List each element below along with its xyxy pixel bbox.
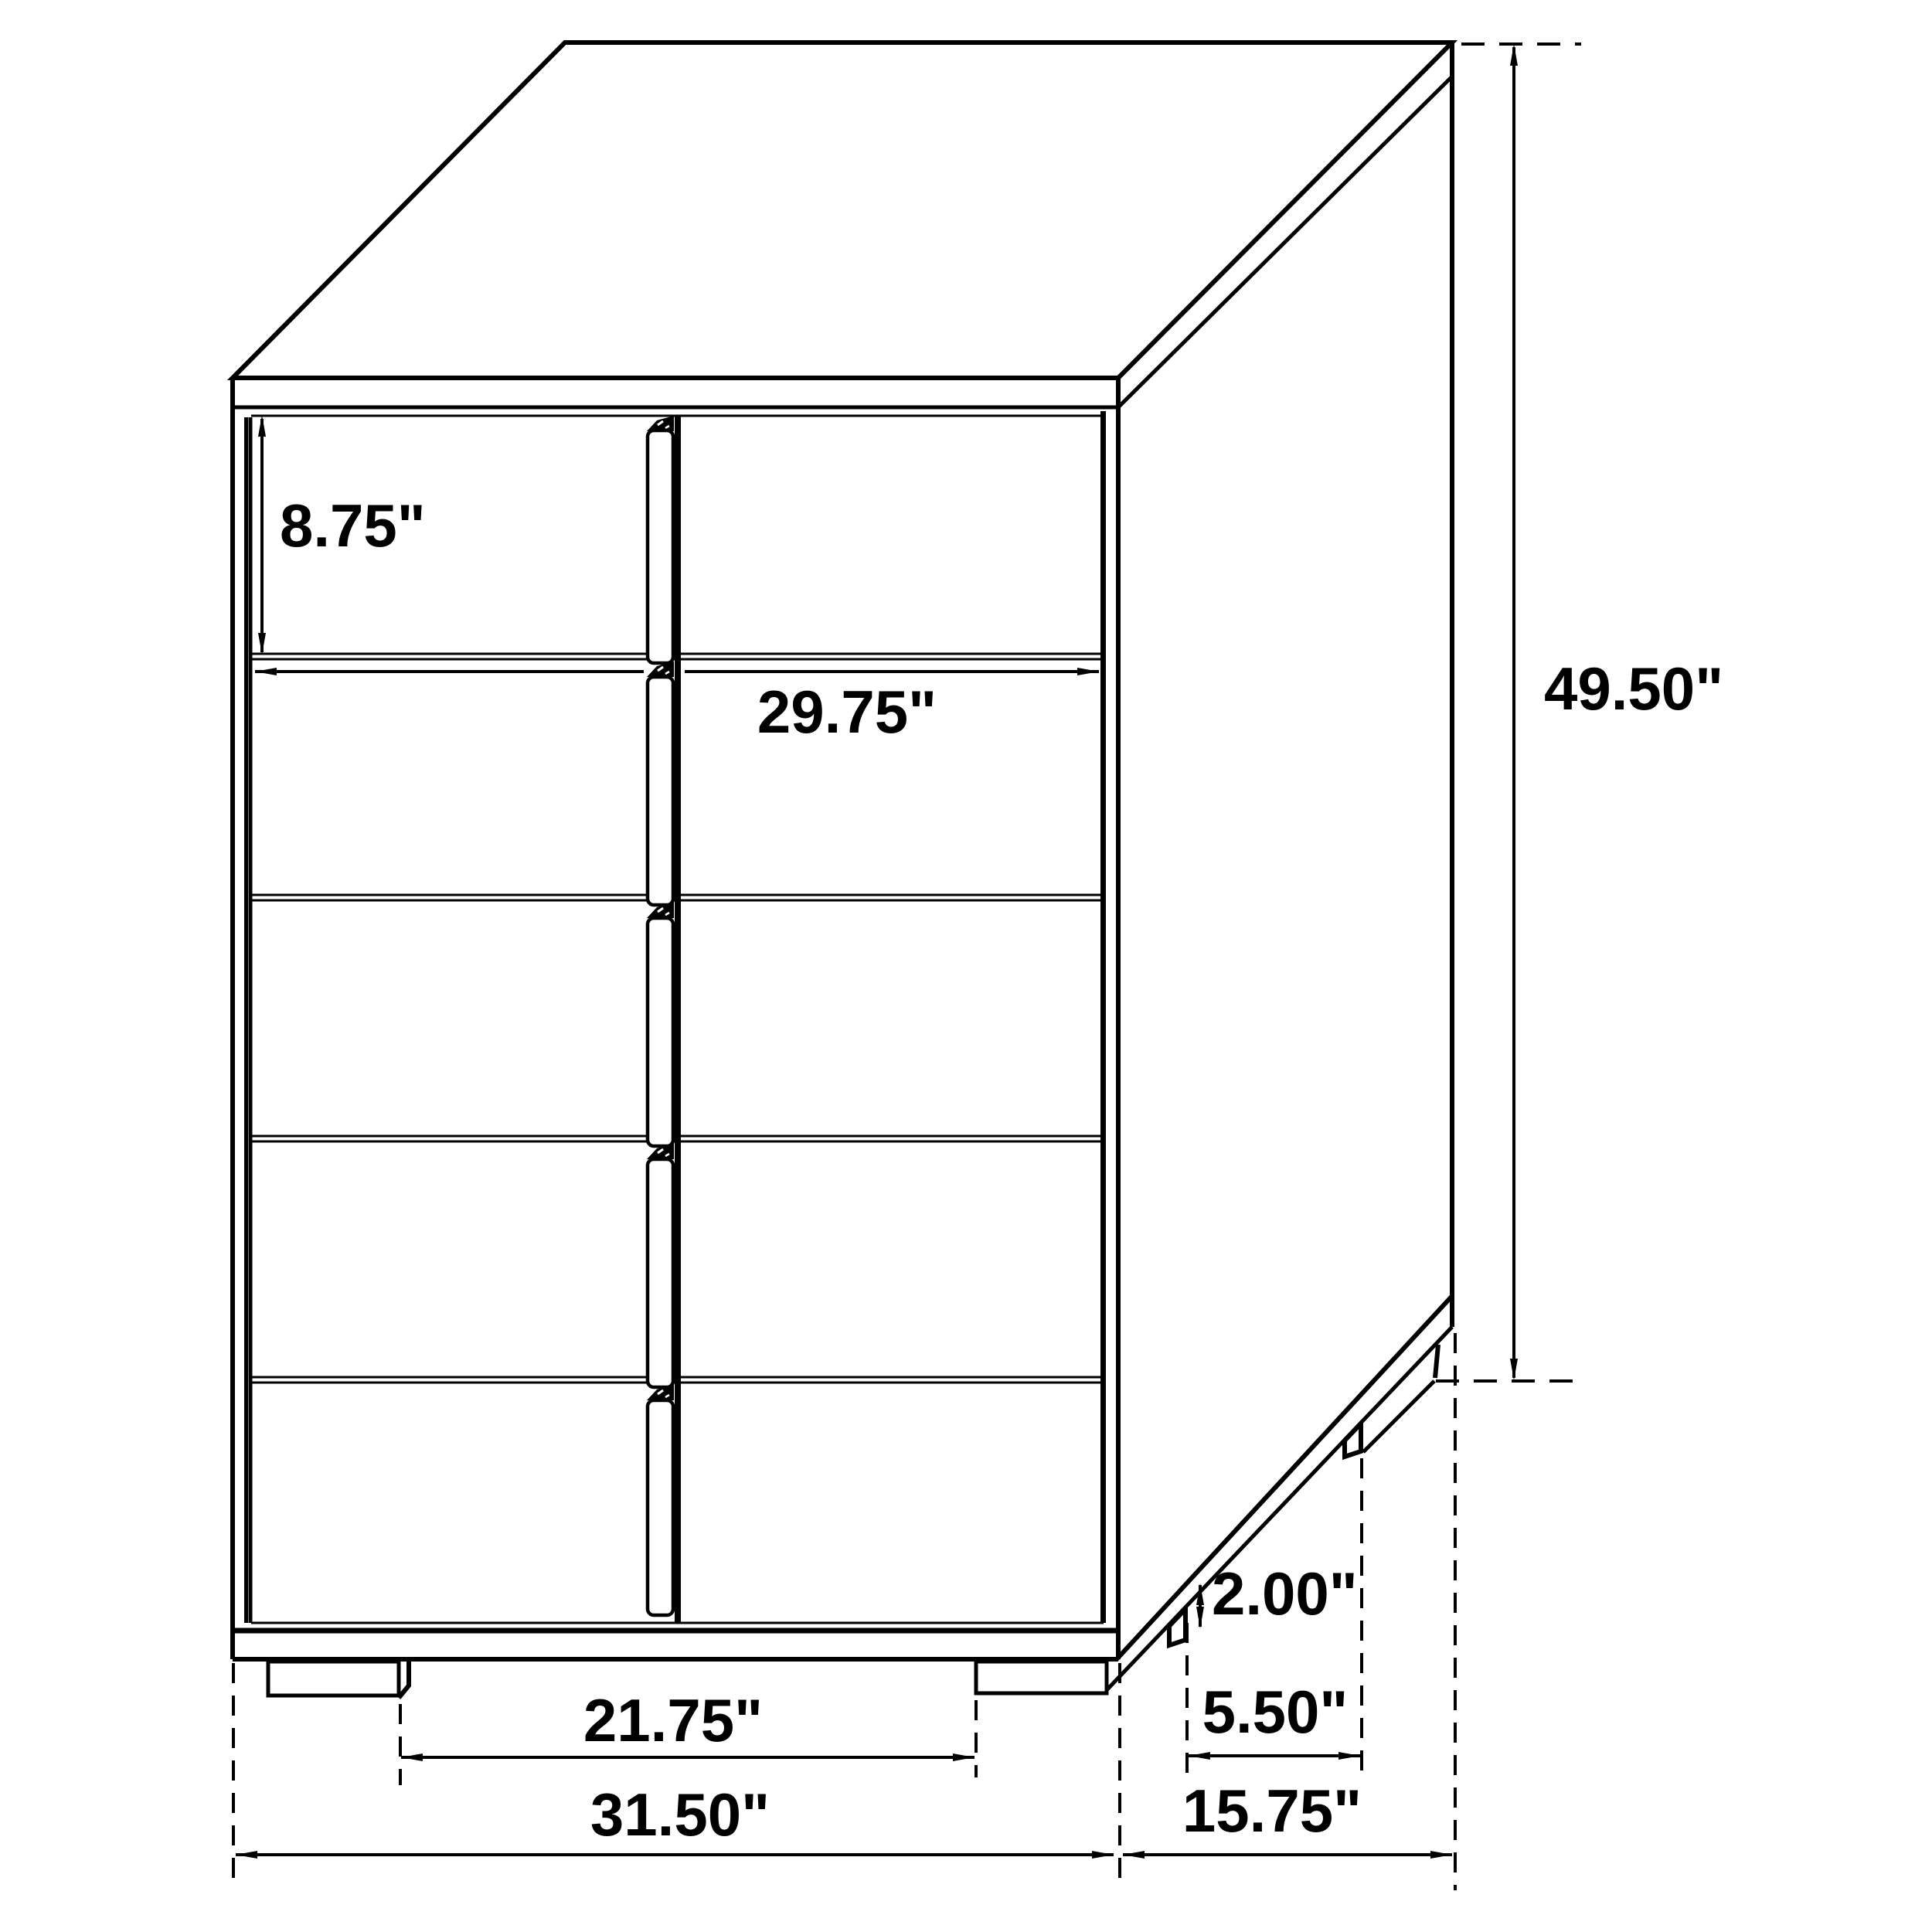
svg-text:15.75": 15.75": [1182, 1777, 1362, 1845]
svg-text:31.50": 31.50": [590, 1781, 770, 1849]
svg-text:5.50": 5.50": [1202, 1678, 1349, 1746]
svg-text:29.75": 29.75": [757, 678, 937, 746]
svg-text:8.75": 8.75": [280, 492, 426, 560]
svg-text:49.50": 49.50": [1544, 655, 1723, 723]
svg-text:21.75": 21.75": [583, 1686, 763, 1754]
svg-text:2.00": 2.00": [1212, 1560, 1358, 1628]
